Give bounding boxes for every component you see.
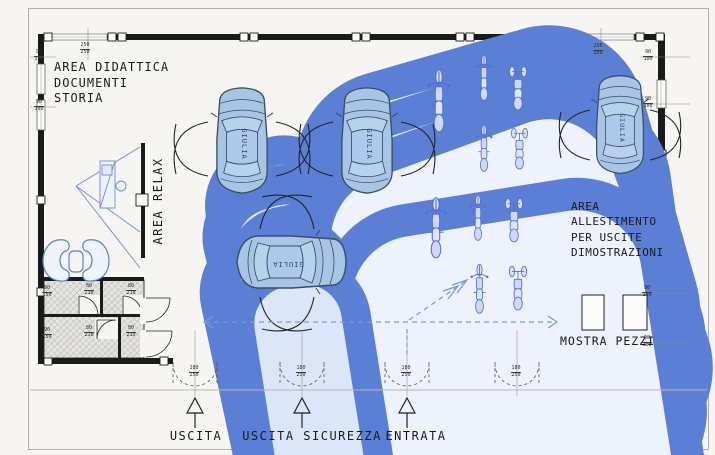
pedestal <box>582 295 604 330</box>
dimension-marker: 250250 <box>593 44 603 56</box>
sofa-icon <box>83 240 109 281</box>
area-relax-label: AREA RELAX <box>151 157 165 244</box>
dimension-marker: 180250 <box>401 366 411 378</box>
dimension-marker: 90100 <box>643 97 653 109</box>
uscita-sicurezza-label: USCITA SICUREZZA <box>242 429 382 443</box>
sofa-icon <box>43 240 69 281</box>
door-swing-icon <box>146 298 172 357</box>
dimension-marker: 90150 <box>42 328 52 340</box>
car-label: GIULIA <box>618 113 626 142</box>
uscita-label: USCITA <box>170 429 222 443</box>
partition-node <box>136 194 148 206</box>
mostra-pezzi-label: MOSTRA PEZZI <box>560 334 655 348</box>
dimension-marker: 80210 <box>84 326 94 338</box>
dimension-marker: 80210 <box>126 284 136 296</box>
dimension-marker: 90100 <box>642 286 652 298</box>
area-didattica-label: AREA DIDATTICA DOCUMENTI STORIA <box>54 60 169 107</box>
dimension-marker: 80210 <box>126 326 136 338</box>
entrata-label: ENTRATA <box>385 429 446 443</box>
dimension-marker: 90150 <box>42 286 52 298</box>
dimension-marker: 180250 <box>189 366 199 378</box>
dimension-marker: 90100 <box>642 336 652 348</box>
presenter-seat <box>116 181 126 191</box>
car-label: GIULIA <box>365 128 373 159</box>
coffee-table <box>69 251 83 272</box>
dimension-marker: 80210 <box>84 284 94 296</box>
dimension-marker: 90100 <box>643 50 653 62</box>
car-label: GIULIA <box>240 128 248 159</box>
car-label: GIULIA <box>272 260 303 268</box>
restroom-block <box>44 277 172 358</box>
relax-sofas <box>43 240 109 281</box>
dimension-marker: 180250 <box>296 366 306 378</box>
dimension-marker: 250250 <box>80 43 90 55</box>
dimension-marker: 90190 <box>34 100 44 112</box>
pedestal <box>623 295 647 330</box>
area-allestimento-label: AREA ALLESTIMENTO PER USCITE DIMOSTRAZIO… <box>571 199 664 261</box>
dimension-marker: 90190 <box>34 50 44 62</box>
floor-plan-canvas: GIULIA GIULIA GIULIA GIULIA <box>0 0 715 455</box>
dimension-marker: 180250 <box>511 366 521 378</box>
